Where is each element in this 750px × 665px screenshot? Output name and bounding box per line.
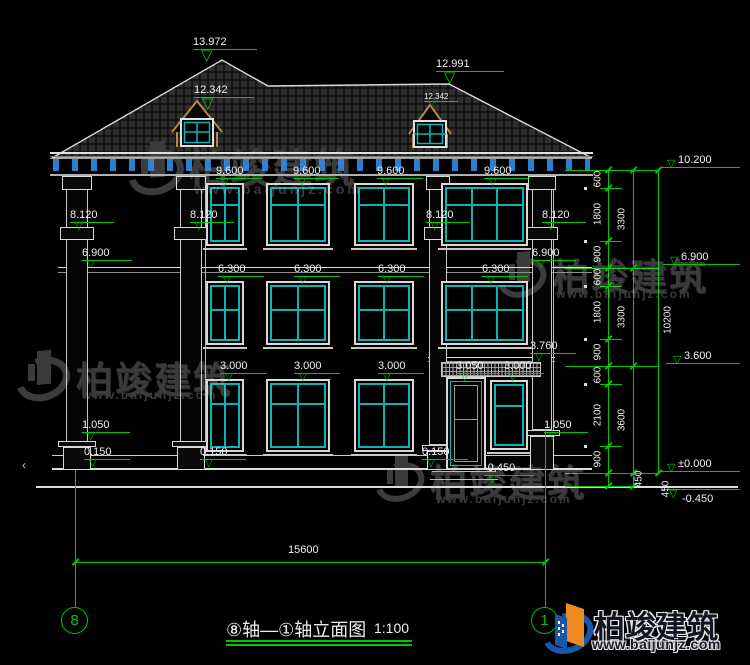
column-capital — [176, 176, 206, 190]
logo-url: www.baijunjz.com — [592, 636, 721, 652]
elevation-mark: 1.050 — [82, 419, 130, 433]
dim-value: 1800 — [593, 203, 604, 225]
dim-value: 450 — [634, 471, 645, 488]
elevation-mark: 9.600 — [293, 165, 339, 179]
dim-line — [565, 170, 658, 171]
dim-tick-line — [600, 339, 622, 340]
dim-chain-line — [608, 170, 609, 486]
level-marker: 3.600 — [666, 363, 740, 364]
cad-elevation-canvas: 13.972 12.342 12.991 12.342 9.600 9.600 … — [0, 0, 750, 665]
stray-cursor-mark: ‹ — [22, 458, 26, 472]
title-underline — [226, 640, 412, 646]
elevation-mark: 3.000 — [220, 360, 266, 374]
axis-bubble-8: 8 — [61, 607, 88, 634]
dim-tick-line — [600, 188, 622, 189]
window — [206, 281, 244, 345]
level-marker: ±0.000 — [660, 471, 740, 472]
window — [266, 183, 330, 246]
dim-tick-line — [600, 286, 622, 287]
axis-line — [545, 430, 546, 607]
elevation-mark: 3.050 — [456, 360, 500, 374]
window-small — [490, 380, 528, 450]
dim-value: 3300 — [617, 208, 628, 230]
elevation-mark: 8.120 — [542, 209, 586, 223]
level-marker: -0.450 — [662, 489, 740, 490]
dim-chain-line — [658, 170, 659, 473]
elevation-mark: 12.991 — [436, 58, 504, 72]
elevation-mark: 8.120 — [70, 209, 114, 223]
window — [266, 281, 330, 345]
hip-roof — [52, 60, 592, 158]
dim-value: 1800 — [593, 301, 604, 323]
elevation-mark: 12.342 — [194, 84, 254, 98]
elevation-mark: 8.120 — [190, 209, 234, 223]
window-wide — [441, 281, 528, 345]
dim-value: 600 — [593, 367, 604, 384]
dim-value: 900 — [593, 451, 604, 468]
span-dim-value: 15600 — [288, 544, 319, 556]
elevation-mark: 6.300 — [482, 263, 528, 277]
dim-value: 3600 — [617, 409, 628, 431]
logo-icon — [542, 597, 594, 661]
elevation-mark: 6.900 — [532, 247, 576, 261]
elevation-mark: 3.000 — [378, 360, 424, 374]
column-capital — [62, 176, 92, 190]
dim-line — [565, 268, 658, 269]
elevation-mark: 6.300 — [378, 263, 424, 277]
dim-line — [565, 366, 658, 367]
dim-chain-line — [633, 170, 634, 486]
dim-value: 600 — [593, 269, 604, 286]
elevation-mark: 3.000 — [504, 360, 544, 374]
level-marker: 6.900 — [663, 264, 740, 265]
dim-value: 600 — [593, 171, 604, 188]
column-capital — [528, 176, 556, 190]
elevation-mark: 3.760 — [530, 340, 576, 354]
dim-value: 3300 — [617, 306, 628, 328]
elevation-mark: 8.120 — [426, 209, 470, 223]
elevation-mark: 9.600 — [484, 165, 530, 179]
drawing-title: ⑧轴—①轴立面图 — [226, 616, 366, 642]
window — [206, 379, 244, 452]
elevation-mark: 0.150 — [84, 446, 130, 460]
window — [266, 379, 330, 452]
dim-value: 450 — [661, 481, 672, 498]
elevation-mark: 9.600 — [216, 165, 262, 179]
window — [354, 183, 414, 246]
drawing-scale: 1:100 — [374, 620, 409, 636]
elevation-mark: 1.050 — [544, 419, 588, 433]
elevation-mark: 13.972 — [193, 36, 257, 50]
window — [354, 379, 414, 452]
elevation-mark: 12.342 — [424, 92, 458, 102]
axis-line — [75, 470, 76, 607]
elevation-mark: 6.300 — [294, 263, 340, 277]
dim-tick-line — [600, 446, 622, 447]
dim-value: 900 — [593, 246, 604, 263]
dim-line — [565, 486, 633, 487]
elevation-mark: 0.150 — [200, 446, 246, 460]
dim-value: 2100 — [593, 404, 604, 426]
dim-value: 900 — [593, 344, 604, 361]
elevation-mark: -0.450 — [484, 462, 534, 476]
dim-tick-line — [600, 241, 622, 242]
dim-tick-line — [600, 384, 622, 385]
span-dim-line — [75, 562, 545, 563]
elevation-mark: 6.900 — [82, 247, 132, 261]
elevation-mark: 6.300 — [218, 263, 264, 277]
entrance-step — [430, 479, 498, 480]
elevation-mark: 9.600 — [377, 165, 423, 179]
level-marker: 10.200 — [660, 167, 740, 168]
dim-value: 10200 — [663, 306, 674, 334]
elevation-mark: 3.000 — [294, 360, 340, 374]
elevation-mark: 0.150 — [422, 446, 468, 460]
window — [354, 281, 414, 345]
